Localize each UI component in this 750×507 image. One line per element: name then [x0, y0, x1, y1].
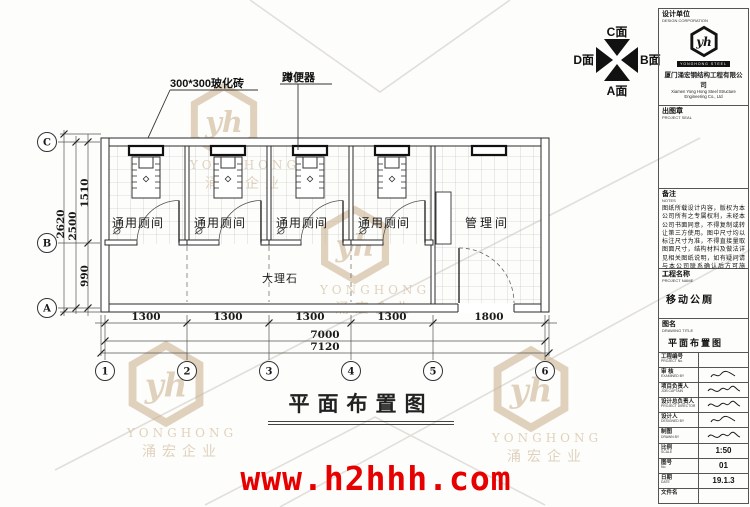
title-block: 设计单位 DESIGN CORPORATION YONGHONG STEEL 厦…: [658, 8, 749, 504]
title-block-rows: 工程编号PROJECT No. 审 核EXAMINED BY 项目负责人JOB …: [659, 353, 748, 503]
management-room-cabinet: [436, 192, 451, 244]
grid-bubble-A: A: [42, 304, 51, 315]
signature-icon: [709, 369, 739, 381]
dim-bay-1: 1300: [131, 311, 160, 323]
company-name-cn: 厦门涌宏钢结构工程有限公司: [662, 69, 745, 89]
dim-left-overall: 2620: [55, 209, 67, 238]
title-block-row: 工程编号PROJECT No.: [659, 353, 748, 368]
title-block-row: 设计人DESIGNED BY: [659, 413, 748, 428]
site-url-watermark: www.h2hhh.com: [100, 459, 652, 498]
row-signature: [699, 368, 748, 382]
row-sublabel: SCALE: [661, 451, 696, 455]
row-signature: [699, 398, 748, 412]
row-sublabel: DATE: [661, 481, 696, 485]
compass-label-top: C面: [607, 25, 628, 39]
project-name-value: 移动公厕: [666, 291, 745, 306]
grid-bubble-B: B: [43, 239, 51, 250]
dim-left-upper: 1510: [79, 178, 91, 207]
grid-bubble-4: 4: [348, 367, 355, 378]
drawing-name-value: 平面布置图: [668, 336, 745, 349]
company-logo-icon: [688, 25, 720, 58]
grid-bubble-1: 1: [102, 367, 109, 378]
dim-left-lower: 990: [79, 265, 91, 287]
notes-section: 备注 NOTES 图纸所载设计内容，版权为本公司所有之专属权利，未经本公司书面同…: [659, 189, 748, 269]
company-name-en: Engineering Co., Ltd: [662, 94, 745, 99]
row-sublabel: PROJECT No.: [661, 360, 696, 364]
dim-total: 7000: [310, 329, 339, 341]
row-sublabel: EXAMINED BY: [661, 375, 696, 379]
grid-bubbles-left: [38, 133, 57, 318]
seal-section: 出图章 PROJECT SEAL: [659, 106, 748, 189]
project-name-sublabel: PROJECT NAME: [662, 279, 745, 283]
row-signature: [699, 383, 748, 397]
signature-icon: [709, 414, 739, 426]
notes-sublabel: NOTES: [662, 199, 745, 203]
row-value: 01: [699, 459, 748, 473]
row-signature: [699, 428, 748, 442]
row-value: [699, 353, 748, 367]
signature-icon: [706, 399, 742, 411]
title-block-row: 图号No. 01: [659, 459, 748, 474]
dim-bay-5: 1800: [474, 311, 503, 323]
seal-sublabel: PROJECT SEAL: [662, 116, 745, 120]
project-name-section: 工程名称 PROJECT NAME 移动公厕: [659, 269, 748, 319]
row-sublabel: DESIGNED BY: [661, 420, 696, 424]
dim-bay-2: 1300: [213, 311, 242, 323]
grid-bubbles-bottom: [96, 362, 555, 381]
signature-icon: [706, 430, 742, 442]
signature-icon: [706, 384, 742, 396]
floor-plan: 1300 1300 1300 1300 1800 7000 7120 151: [0, 0, 750, 507]
compass-icon: [596, 39, 638, 81]
row-value: 19.1.3: [699, 474, 748, 488]
title-block-row: 审 核EXAMINED BY: [659, 368, 748, 383]
drawing-name-sublabel: DRAWING TITLE: [662, 329, 745, 333]
room-label-stall: 通用厕间: [194, 214, 246, 231]
title-block-row: 项目负责人JOB CAPTAIN: [659, 383, 748, 398]
row-sublabel: PROJECT DIRECTOR: [661, 405, 696, 409]
grid-bubble-2: 2: [184, 367, 191, 378]
room-label-stall: 通用厕间: [276, 214, 328, 231]
title-block-row: 制图DRAWN BY: [659, 428, 748, 443]
drawing-title: 平面布置图: [268, 388, 454, 425]
row-sublabel: No.: [661, 466, 696, 470]
company-banner: YONGHONG STEEL: [677, 61, 730, 67]
grid-bubble-C: C: [43, 138, 51, 149]
grid-bubble-5: 5: [430, 367, 437, 378]
title-block-row: 比例SCALE 1:50: [659, 444, 748, 459]
compass-label-bottom: A面: [607, 84, 628, 98]
room-label-stall: 通用厕间: [358, 214, 410, 231]
row-signature: [699, 413, 748, 427]
row-label: 文件名: [661, 490, 696, 496]
design-unit-sublabel: DESIGN CORPORATION: [662, 19, 745, 23]
room-label-management: 管理间: [465, 214, 510, 231]
row-sublabel: DRAWN BY: [661, 436, 696, 440]
floor-material-label: 大理石: [262, 270, 298, 286]
dim-overall: 7120: [310, 341, 339, 353]
room-label-stall: 通用厕间: [112, 214, 164, 231]
row-value: [699, 489, 748, 503]
design-unit-section: 设计单位 DESIGN CORPORATION YONGHONG STEEL 厦…: [659, 9, 748, 106]
dim-bay-4: 1300: [377, 311, 406, 323]
title-block-row: 日期DATE 19.1.3: [659, 474, 748, 489]
dim-left-total: 2500: [67, 211, 79, 240]
title-block-row: 文件名: [659, 489, 748, 503]
title-block-row: 设计总负责人PROJECT DIRECTOR: [659, 398, 748, 413]
row-sublabel: JOB CAPTAIN: [661, 390, 696, 394]
drawing-name-section: 图名 DRAWING TITLE 平面布置图: [659, 319, 748, 353]
row-value: 1:50: [699, 444, 748, 458]
dim-bay-3: 1300: [295, 311, 324, 323]
grid-bubble-3: 3: [266, 367, 273, 378]
management-room-window: [472, 146, 506, 155]
drawing-sheet: yh: [0, 0, 750, 507]
callout-tile: 300*300玻化砖: [170, 75, 244, 91]
grid-bubble-6: 6: [542, 367, 549, 378]
callout-toilet: 蹲便器: [282, 69, 315, 85]
compass-label-left: D面: [573, 53, 594, 67]
